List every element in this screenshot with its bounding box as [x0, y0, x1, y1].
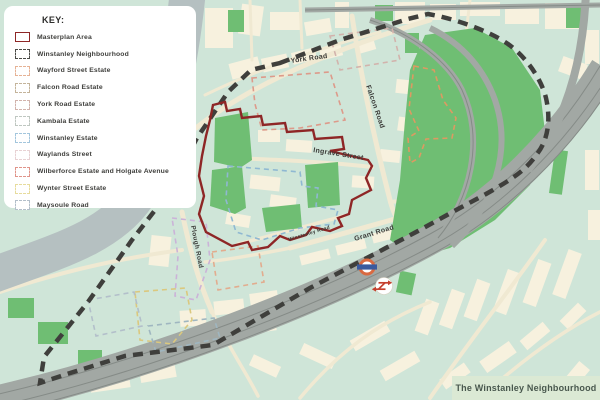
legend-item-york-road-estate: York Road Estate [4, 96, 196, 113]
legend-item-wynter-street-estate: Wynter Street Estate [4, 180, 196, 197]
legend-item-wayford-street-estate: Wayford Street Estate [4, 63, 196, 80]
legend-swatch-maysoule-road [15, 200, 30, 210]
legend-item-masterplan-area: Masterplan Area [4, 29, 196, 46]
legend-swatch-wayford-street-estate [15, 66, 30, 76]
caption-band: The Winstanley Neighbourhood [452, 376, 600, 400]
legend-label-falcon-road-estate: Falcon Road Estate [37, 84, 103, 91]
legend-item-kambala-estate: Kambala Estate [4, 113, 196, 130]
legend-label-masterplan-area: Masterplan Area [37, 34, 92, 41]
legend-label-winstanley-neighbourhood: Winstanley Neighbourhood [37, 51, 129, 58]
legend-label-kambala-estate: Kambala Estate [37, 118, 90, 125]
legend-swatch-wynter-street-estate [15, 184, 30, 194]
map-key-panel: KEY: Masterplan Area Winstanley Neighbou… [4, 6, 196, 208]
legend-swatch-winstanley-estate [15, 133, 30, 143]
legend-swatch-falcon-road-estate [15, 83, 30, 93]
legend-item-falcon-road-estate: Falcon Road Estate [4, 79, 196, 96]
legend-item-waylands-street: Waylands Street [4, 147, 196, 164]
legend-label-wynter-street-estate: Wynter Street Estate [37, 185, 106, 192]
legend-item-wilberforce-estate-and-holgate-avenue: Wilberforce Estate and Holgate Avenue [4, 163, 196, 180]
legend-label-wayford-street-estate: Wayford Street Estate [37, 67, 111, 74]
legend-item-maysoule-road: Maysoule Road [4, 197, 196, 214]
legend-swatch-winstanley-neighbourhood [15, 49, 30, 59]
winstanley-masterplan-map: York RoadFalcon RoadIngrave StreetGrant … [0, 0, 600, 400]
legend-label-maysoule-road: Maysoule Road [37, 202, 89, 209]
key-title: KEY: [42, 15, 196, 25]
legend-swatch-masterplan-area [15, 32, 30, 42]
legend-swatch-york-road-estate [15, 100, 30, 110]
key-items: Masterplan Area Winstanley Neighbourhood… [4, 29, 196, 214]
legend-label-wilberforce-estate-and-holgate-avenue: Wilberforce Estate and Holgate Avenue [37, 168, 169, 175]
legend-label-york-road-estate: York Road Estate [37, 101, 95, 108]
legend-swatch-kambala-estate [15, 116, 30, 126]
legend-item-winstanley-neighbourhood: Winstanley Neighbourhood [4, 46, 196, 63]
legend-label-winstanley-estate: Winstanley Estate [37, 135, 98, 142]
legend-swatch-waylands-street [15, 150, 30, 160]
caption-text: The Winstanley Neighbourhood [455, 383, 596, 393]
legend-item-winstanley-estate: Winstanley Estate [4, 130, 196, 147]
legend-label-waylands-street: Waylands Street [37, 151, 92, 158]
legend-swatch-wilberforce-estate-and-holgate-avenue [15, 167, 30, 177]
